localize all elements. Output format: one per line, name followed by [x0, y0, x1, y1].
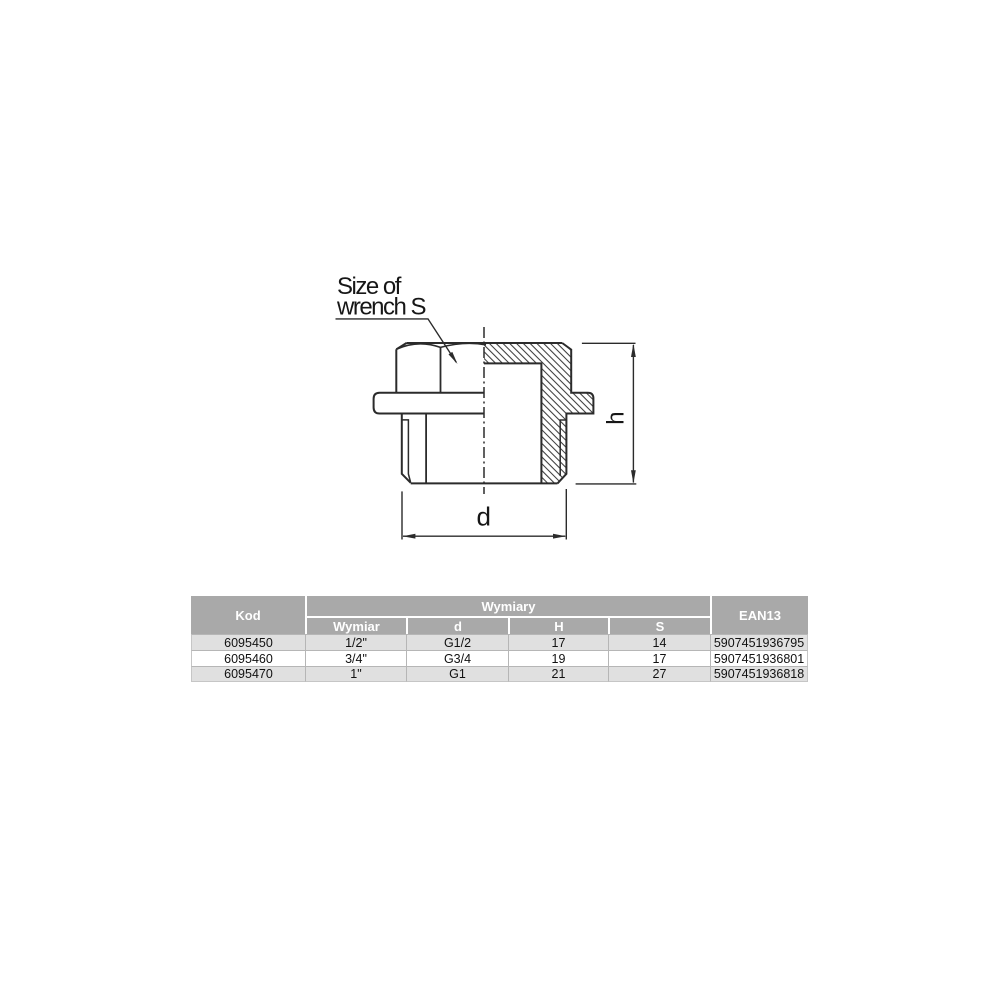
svg-text:h: h — [603, 411, 630, 424]
svg-text:wrench S: wrench S — [336, 294, 426, 321]
svg-text:d: d — [476, 502, 490, 532]
